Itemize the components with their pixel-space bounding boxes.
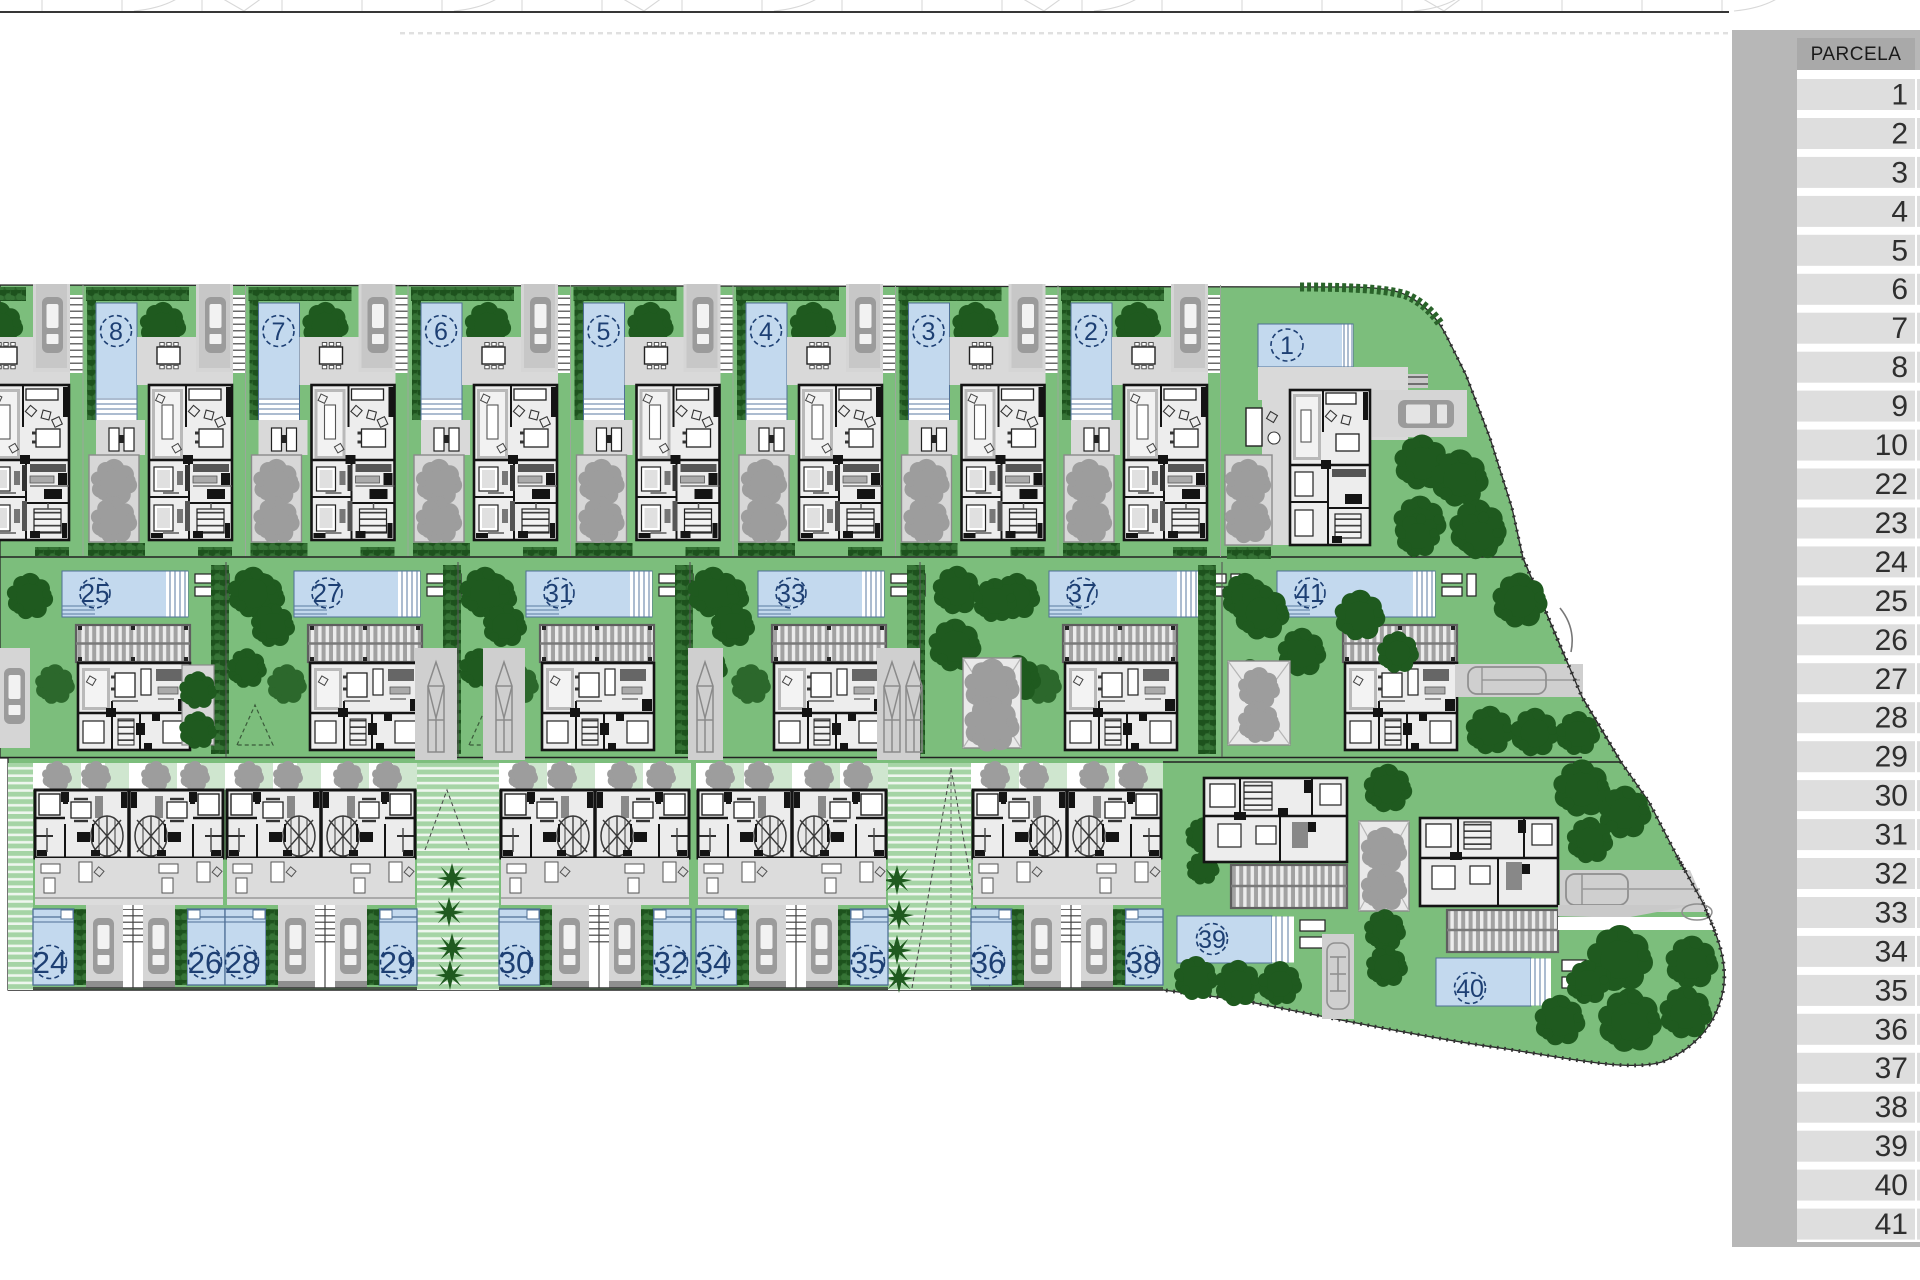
svg-text:4: 4 xyxy=(759,318,773,346)
svg-text:25: 25 xyxy=(1875,585,1908,618)
svg-text:28: 28 xyxy=(1875,702,1908,735)
svg-text:32: 32 xyxy=(654,945,688,980)
svg-text:25: 25 xyxy=(81,578,110,608)
svg-text:5: 5 xyxy=(597,318,611,346)
svg-text:2: 2 xyxy=(1891,117,1908,150)
svg-text:1: 1 xyxy=(1280,332,1294,360)
svg-text:32: 32 xyxy=(1875,858,1908,891)
svg-text:3: 3 xyxy=(1891,156,1908,189)
svg-text:38: 38 xyxy=(1126,945,1160,980)
svg-text:8: 8 xyxy=(1891,351,1908,384)
svg-text:31: 31 xyxy=(1875,819,1908,852)
svg-text:33: 33 xyxy=(1875,897,1908,930)
svg-text:24: 24 xyxy=(1875,546,1908,579)
svg-text:39: 39 xyxy=(1875,1130,1908,1163)
svg-text:37: 37 xyxy=(1068,578,1097,608)
svg-text:39: 39 xyxy=(1198,926,1226,954)
svg-text:4: 4 xyxy=(1891,195,1908,228)
svg-text:9: 9 xyxy=(1891,390,1908,423)
svg-text:36: 36 xyxy=(971,945,1005,980)
svg-text:27: 27 xyxy=(1875,663,1908,696)
svg-text:5: 5 xyxy=(1891,234,1908,267)
svg-text:7: 7 xyxy=(1891,312,1908,345)
svg-text:6: 6 xyxy=(434,318,448,346)
svg-text:37: 37 xyxy=(1875,1052,1908,1085)
svg-text:PARCELA: PARCELA xyxy=(1811,44,1902,65)
svg-text:8: 8 xyxy=(109,318,123,346)
svg-text:26: 26 xyxy=(188,945,222,980)
svg-text:2: 2 xyxy=(1084,318,1098,346)
svg-text:29: 29 xyxy=(1875,741,1908,774)
svg-text:41: 41 xyxy=(1875,1208,1908,1241)
svg-text:31: 31 xyxy=(545,578,574,608)
svg-text:30: 30 xyxy=(499,945,533,980)
svg-text:22: 22 xyxy=(1875,468,1908,501)
svg-text:6: 6 xyxy=(1891,273,1908,306)
svg-text:34: 34 xyxy=(1875,935,1908,968)
svg-text:1: 1 xyxy=(1891,79,1908,112)
svg-text:23: 23 xyxy=(1875,507,1908,540)
svg-text:38: 38 xyxy=(1875,1091,1908,1124)
svg-text:26: 26 xyxy=(1875,624,1908,657)
svg-text:40: 40 xyxy=(1456,975,1484,1003)
svg-text:24: 24 xyxy=(33,945,67,980)
svg-text:29: 29 xyxy=(380,945,414,980)
svg-text:34: 34 xyxy=(696,945,730,980)
svg-text:3: 3 xyxy=(922,318,936,346)
svg-text:36: 36 xyxy=(1875,1013,1908,1046)
svg-text:40: 40 xyxy=(1875,1169,1908,1202)
svg-text:30: 30 xyxy=(1875,780,1908,813)
svg-text:28: 28 xyxy=(225,945,259,980)
svg-text:27: 27 xyxy=(313,578,342,608)
svg-text:10: 10 xyxy=(1875,429,1908,462)
svg-text:41: 41 xyxy=(1296,578,1325,608)
svg-text:33: 33 xyxy=(777,578,806,608)
svg-text:35: 35 xyxy=(1875,974,1908,1007)
svg-text:7: 7 xyxy=(272,318,286,346)
svg-text:35: 35 xyxy=(851,945,885,980)
